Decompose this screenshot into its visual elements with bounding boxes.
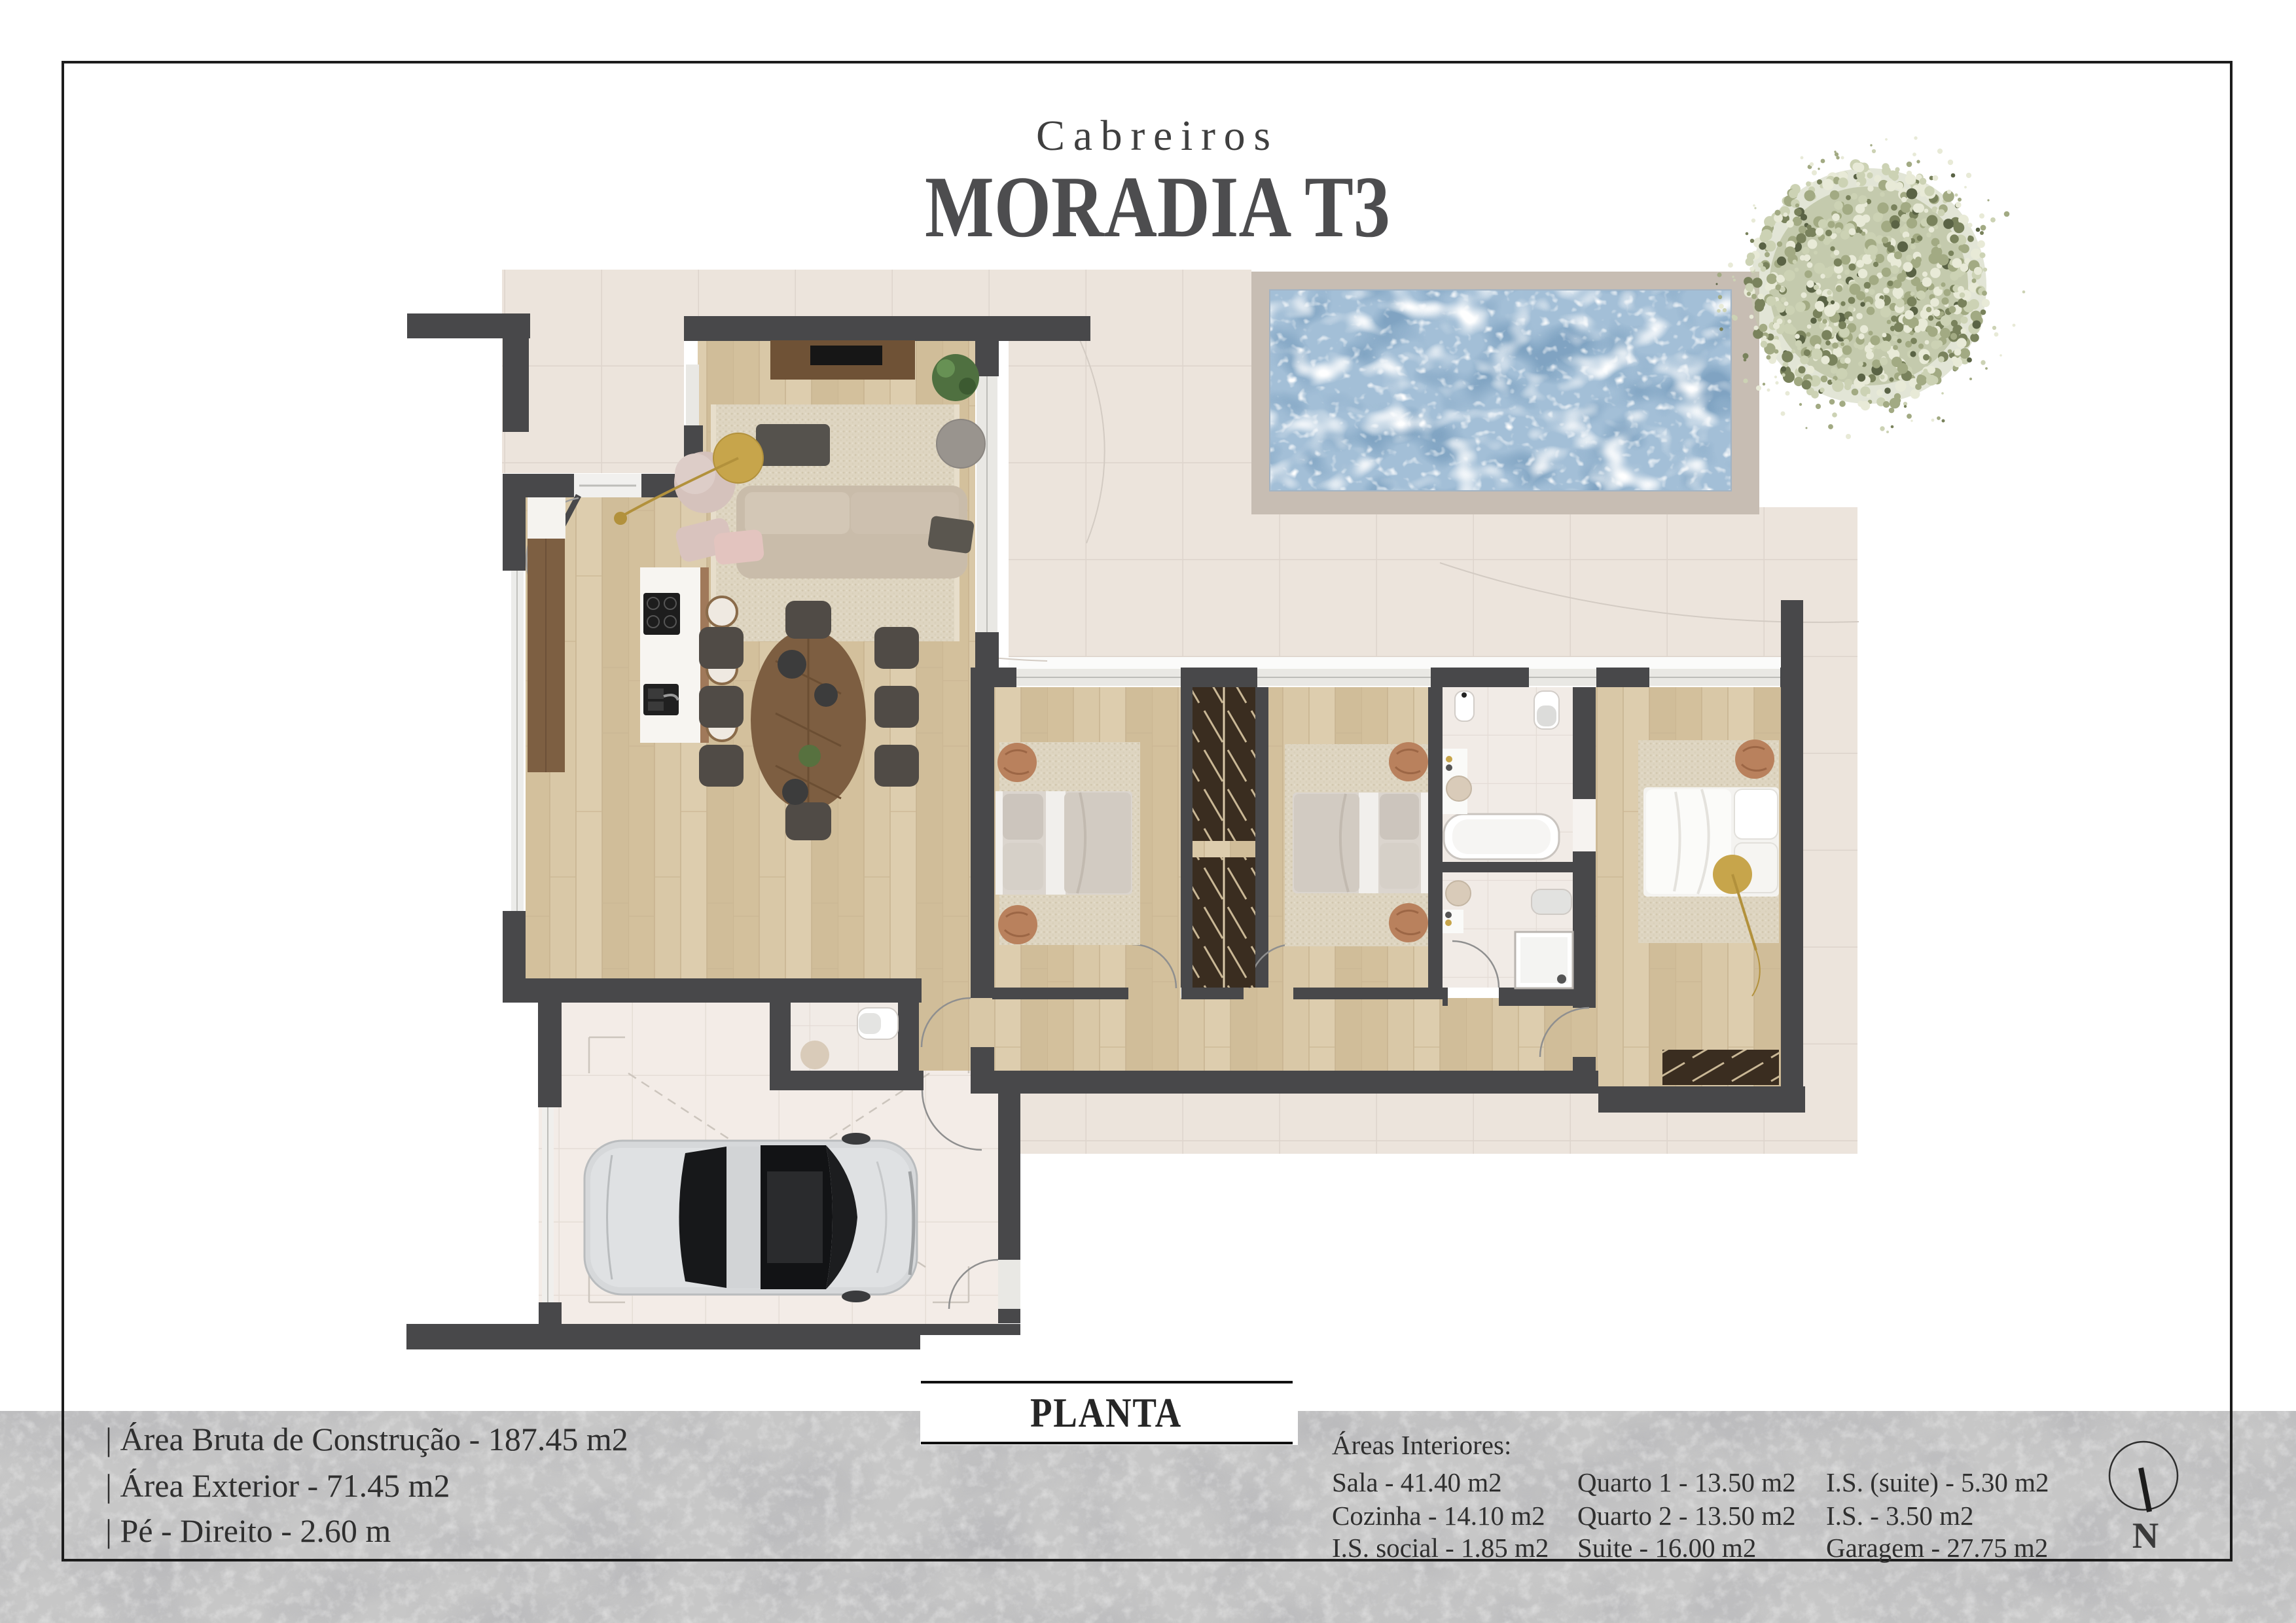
svg-text:Sala - 41.40 m2: Sala - 41.40 m2 xyxy=(1332,1467,1502,1497)
svg-text:| Pé - Direito - 2.60 m: | Pé - Direito - 2.60 m xyxy=(105,1512,391,1549)
svg-text:N: N xyxy=(2132,1516,2159,1556)
svg-text:Quarto 1 - 13.50 m2: Quarto 1 - 13.50 m2 xyxy=(1577,1467,1796,1497)
svg-text:I.S. (suite) - 5.30 m2: I.S. (suite) - 5.30 m2 xyxy=(1826,1467,2049,1497)
svg-text:Garagem - 27.75 m2: Garagem - 27.75 m2 xyxy=(1826,1533,2048,1563)
svg-text:I.S. - 3.50 m2: I.S. - 3.50 m2 xyxy=(1826,1501,1974,1531)
svg-text:Cozinha - 14.10 m2: Cozinha - 14.10 m2 xyxy=(1332,1501,1545,1531)
svg-text:| Área Bruta de Construção - 1: | Área Bruta de Construção - 187.45 m2 xyxy=(105,1421,628,1457)
svg-text:I.S. social - 1.85 m2: I.S. social - 1.85 m2 xyxy=(1332,1533,1549,1563)
svg-text:Cabreiros: Cabreiros xyxy=(1036,112,1282,160)
svg-text:MORADIA T3: MORADIA T3 xyxy=(925,158,1390,255)
svg-text:Suite - 16.00 m2: Suite - 16.00 m2 xyxy=(1577,1533,1756,1563)
svg-text:| Área Exterior - 71.45 m2: | Área Exterior - 71.45 m2 xyxy=(105,1467,450,1504)
svg-text:PLANTA: PLANTA xyxy=(1030,1389,1182,1436)
svg-text:Áreas Interiores:: Áreas Interiores: xyxy=(1332,1430,1511,1460)
svg-text:Quarto 2 - 13.50 m2: Quarto 2 - 13.50 m2 xyxy=(1577,1501,1796,1531)
